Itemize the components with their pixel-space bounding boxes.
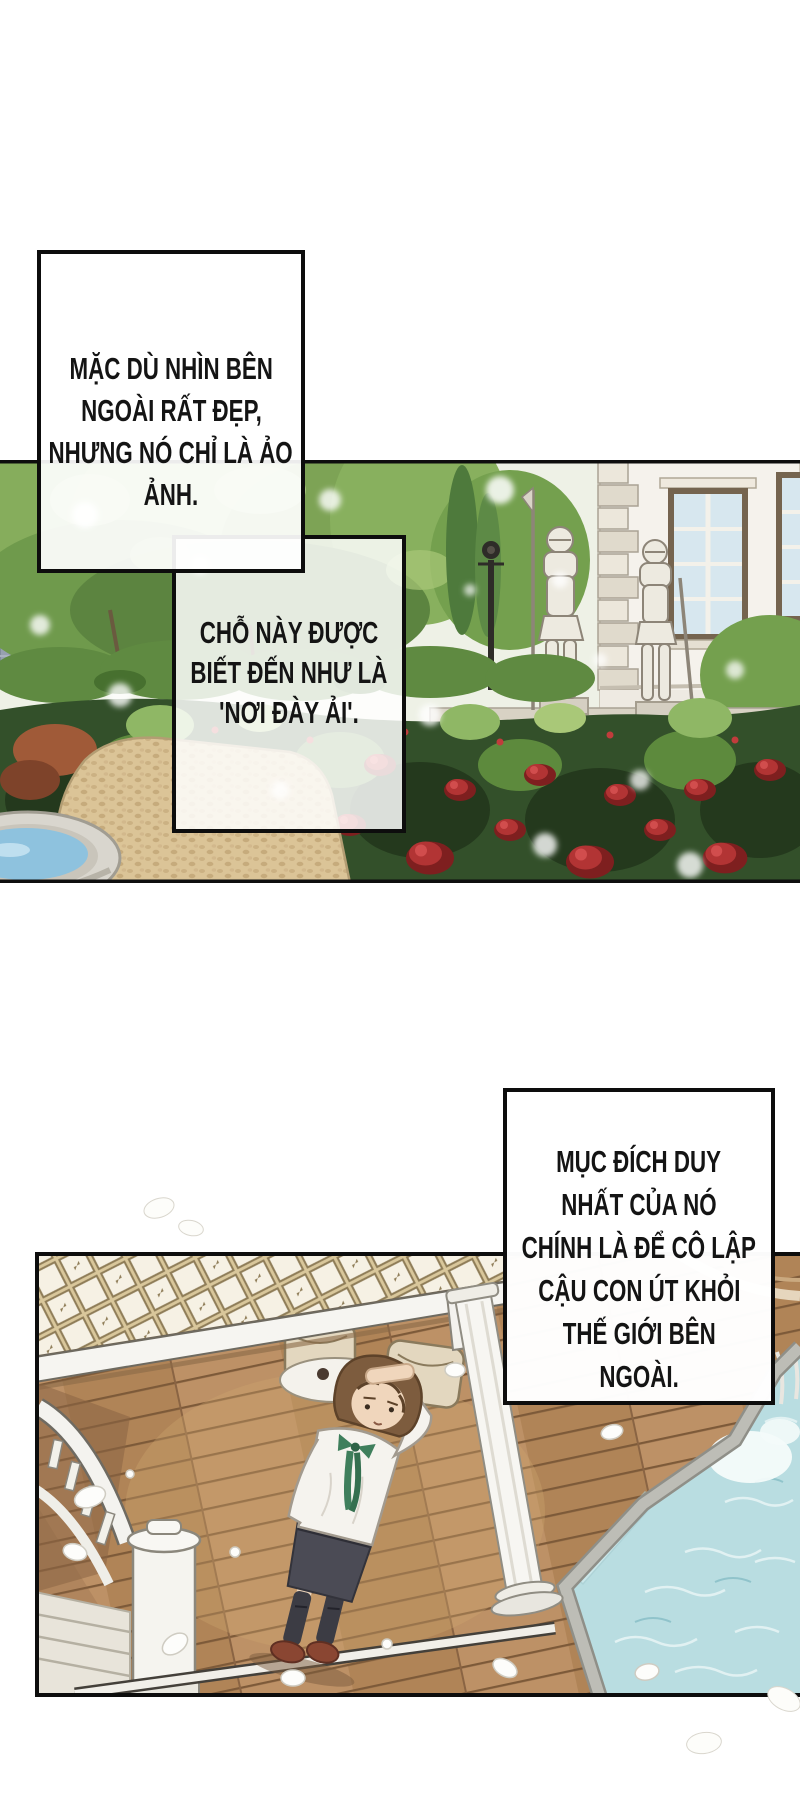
narration-line: CHÍNH LÀ ĐỂ CÔ LẬP <box>522 1226 756 1269</box>
narration-line: NGOÀI. <box>599 1355 678 1398</box>
narration-box-2: CHỖ NÀY ĐƯỢCBIẾT ĐẾN NHƯ LÀ'NƠI ĐÀY ẢI'. <box>172 535 406 833</box>
newel-post <box>128 1520 200 1697</box>
petal <box>177 1217 206 1238</box>
narration-line: 'NƠI ĐÀY ẢI'. <box>219 693 359 733</box>
petal <box>685 1730 724 1757</box>
narration-line: NHƯNG NÓ CHỈ LÀ ẢO <box>49 432 293 474</box>
narration-box-1: MẶC DÙ NHÌN BÊNNGOÀI RẤT ĐẸP,NHƯNG NÓ CH… <box>37 250 305 573</box>
comic-page: MẶC DÙ NHÌN BÊNNGOÀI RẤT ĐẸP,NHƯNG NÓ CH… <box>0 0 800 1800</box>
narration-line: NGOÀI RẤT ĐẸP, <box>81 390 262 432</box>
narration-line: MỤC ĐÍCH DUY <box>557 1140 722 1183</box>
narration-line: NHẤT CỦA NÓ <box>561 1183 716 1226</box>
narration-box-3: MỤC ĐÍCH DUYNHẤT CỦA NÓCHÍNH LÀ ĐỂ CÔ LẬ… <box>503 1088 775 1405</box>
narration-line: BIẾT ĐẾN NHƯ LÀ <box>190 653 387 693</box>
narration-line: CẬU CON ÚT KHỎI <box>538 1269 740 1312</box>
narration-line: ẢNH. <box>144 474 199 516</box>
mansion-window-2 <box>776 472 800 622</box>
cypress-tree <box>446 465 478 635</box>
panel-border-left <box>35 1252 39 1697</box>
narration-line: MẶC DÙ NHÌN BÊN <box>69 348 272 390</box>
panel-border-bottom <box>35 1693 800 1697</box>
narration-line: THẾ GIỚI BÊN <box>563 1312 716 1355</box>
petal <box>141 1194 178 1223</box>
panel-border-bottom <box>0 880 800 884</box>
narration-line: CHỖ NÀY ĐƯỢC <box>200 613 379 653</box>
